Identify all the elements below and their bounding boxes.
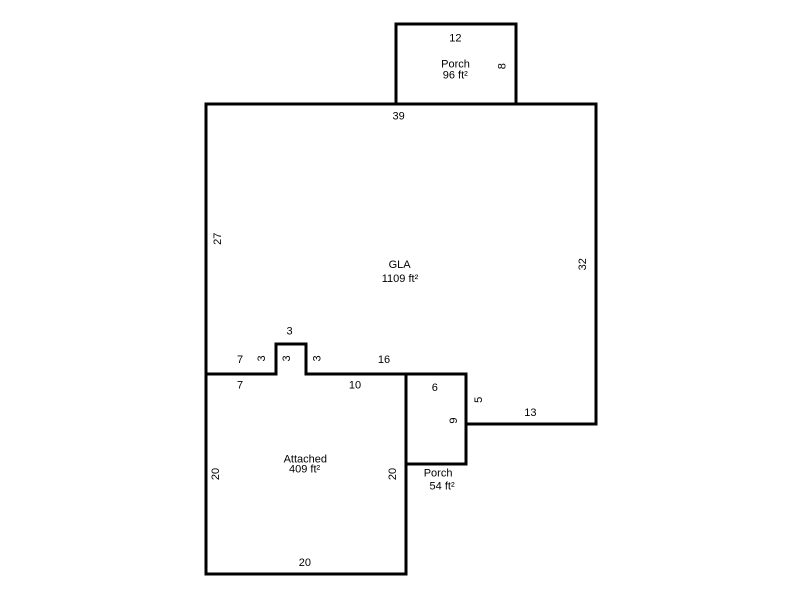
svg-text:12: 12 bbox=[449, 33, 461, 45]
svg-text:1109 ft²: 1109 ft² bbox=[382, 273, 419, 285]
svg-text:5: 5 bbox=[473, 397, 485, 403]
svg-text:3: 3 bbox=[256, 355, 268, 361]
svg-text:16: 16 bbox=[378, 354, 390, 366]
svg-text:39: 39 bbox=[392, 111, 404, 123]
svg-text:54 ft²: 54 ft² bbox=[430, 481, 455, 493]
svg-text:13: 13 bbox=[524, 407, 536, 419]
svg-text:10: 10 bbox=[349, 380, 361, 392]
svg-text:3: 3 bbox=[311, 355, 323, 361]
svg-text:32: 32 bbox=[577, 258, 589, 270]
svg-text:20: 20 bbox=[210, 468, 222, 480]
svg-text:7: 7 bbox=[237, 380, 243, 392]
svg-text:Porch: Porch bbox=[441, 59, 470, 71]
svg-text:20: 20 bbox=[387, 468, 399, 480]
svg-text:6: 6 bbox=[432, 382, 438, 394]
svg-text:20: 20 bbox=[299, 557, 311, 569]
svg-text:7: 7 bbox=[237, 354, 243, 366]
svg-text:3: 3 bbox=[286, 326, 292, 338]
svg-text:Porch: Porch bbox=[424, 468, 453, 480]
svg-text:409 ft²: 409 ft² bbox=[289, 464, 321, 476]
svg-text:27: 27 bbox=[212, 233, 224, 245]
svg-text:9: 9 bbox=[448, 418, 460, 424]
svg-text:96 ft²: 96 ft² bbox=[443, 70, 468, 82]
svg-text:3: 3 bbox=[281, 355, 293, 361]
svg-text:GLA: GLA bbox=[389, 259, 412, 271]
svg-text:8: 8 bbox=[497, 63, 509, 69]
